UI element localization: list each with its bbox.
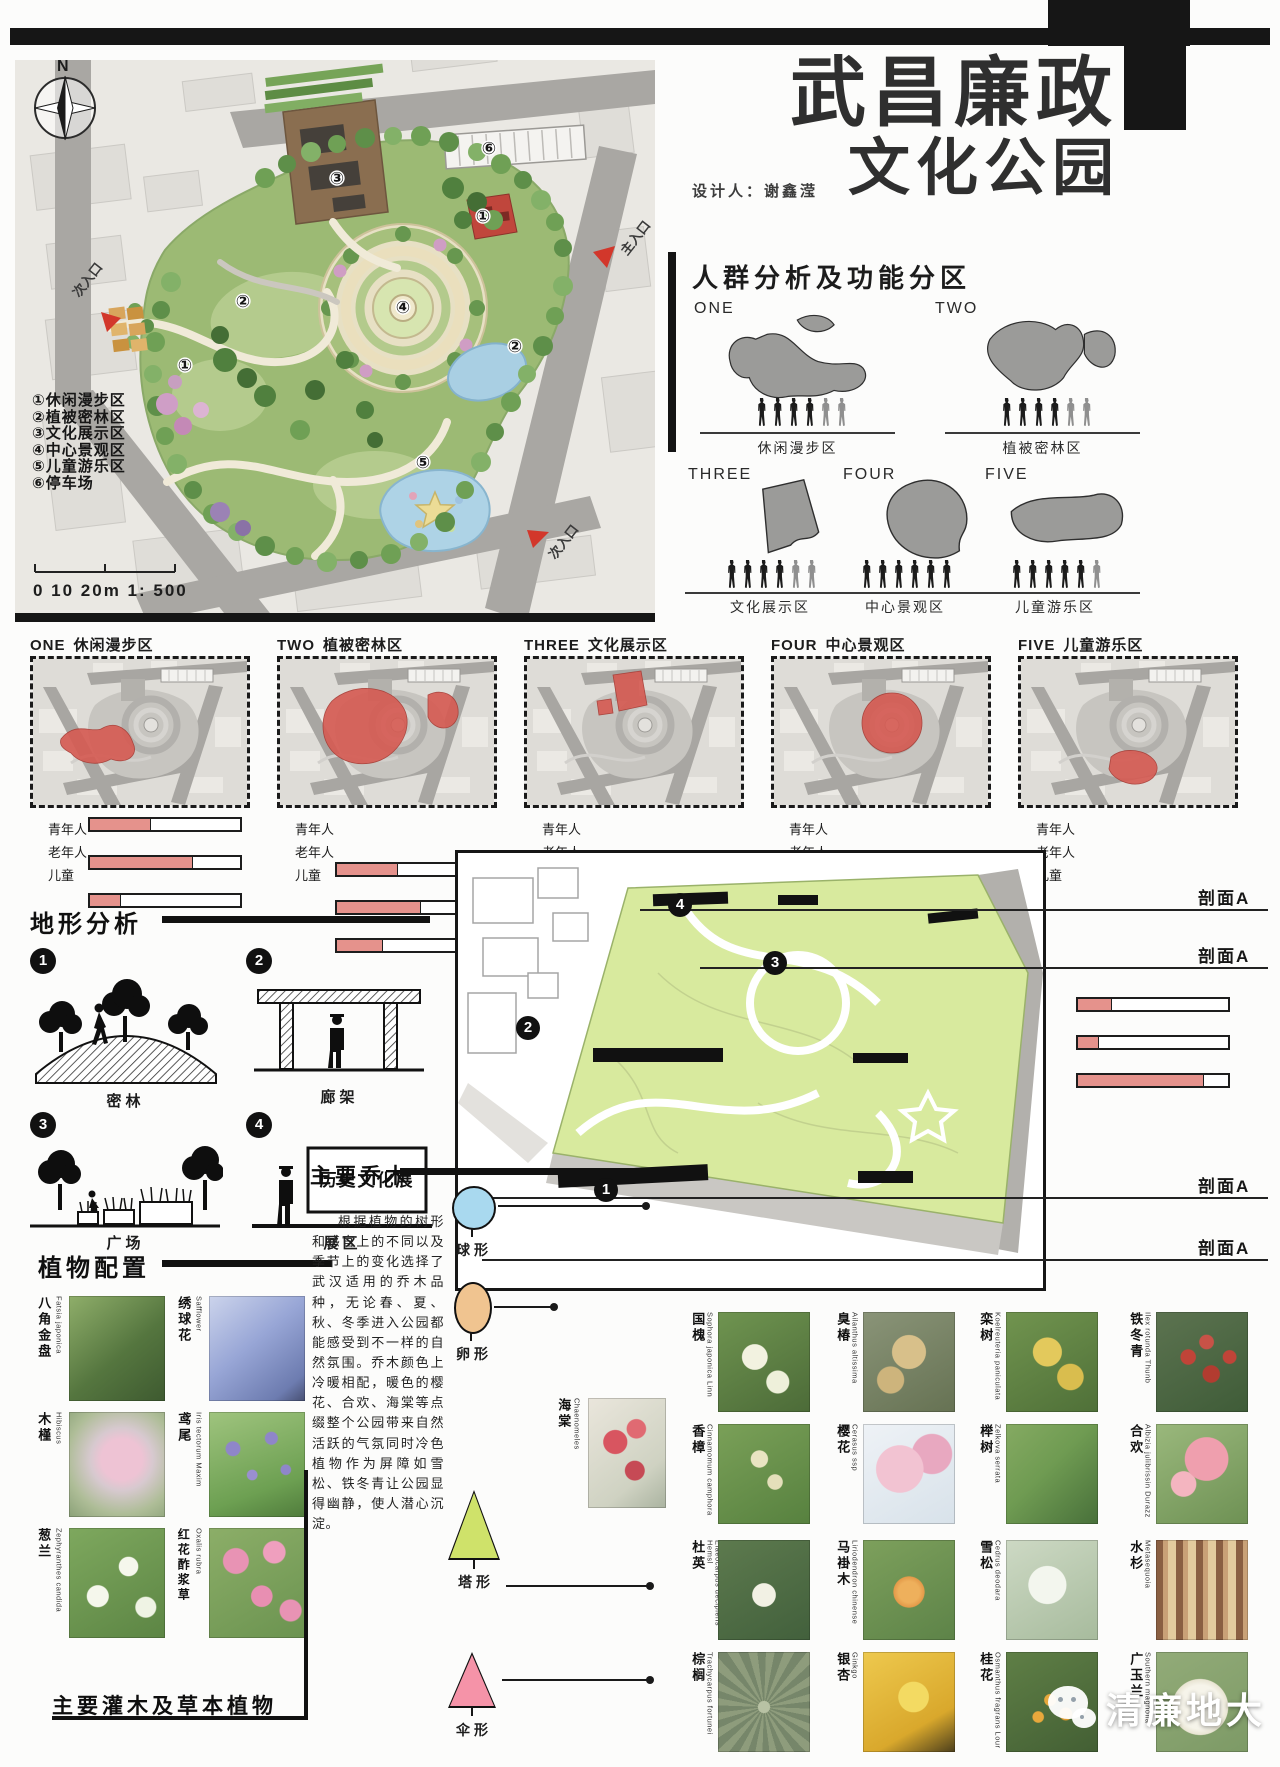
terrain-section-title: 地形分析 [30,904,142,939]
north-label: N [57,58,69,76]
person-icon [787,398,800,426]
terrain-illustration-pergola [252,964,427,1082]
plant-photo [863,1540,955,1640]
plant-photo [1006,1312,1098,1412]
legend-item: ③文化展示区 [32,426,126,443]
plant-latin: Cedrus deodara [993,1540,1001,1640]
section-line [640,909,1268,911]
plant-latin: Ailanthus altissima [850,1312,858,1412]
zone-shape-two [955,312,1145,400]
plant-photo [863,1652,955,1752]
divider [52,1716,308,1720]
minimap-title: TWO植被密林区 [277,634,403,655]
plant-name: 马褂木 [835,1540,849,1640]
plant-name: 八角金盘 [36,1296,50,1401]
plant-name: 国槐 [690,1312,704,1412]
bar-fill [1078,999,1112,1010]
watermark-text: 清廉地大 [1106,1682,1266,1734]
person-icon [1058,560,1071,588]
zone-shape-one [700,312,905,400]
person-icon [771,398,784,426]
person-icon [908,560,921,588]
plant-name: 海棠 [556,1398,570,1508]
plant-latin: Safflower [194,1296,202,1401]
crowd-section-title: 人群分析及功能分区 [692,258,971,295]
person-icon [725,560,738,588]
plant-latin: Albizia julibrissin Durazz [1143,1424,1151,1524]
title-corner-block [1048,0,1190,46]
connector-dot [646,1582,654,1590]
plant-photo [1006,1540,1098,1640]
zone-shape-five [1000,486,1140,552]
plant-photo [1006,1424,1098,1524]
icon-stem [471,1708,473,1716]
person-icon [860,560,873,588]
tree-shape-label: 塔形 [458,1572,494,1592]
terrain-illustration-forest [28,964,223,1089]
main-trees-title: 主要乔木 [310,1160,410,1190]
bar-fill [90,857,193,868]
culture-plaza [283,100,388,224]
plant-photo [209,1412,305,1517]
person-icon [876,560,889,588]
tree-shape-round-icon [452,1186,496,1230]
bar-label: 儿童 [48,865,92,884]
tree-shape-pyramid-icon [448,1490,500,1560]
wechat-icon [1048,1686,1098,1730]
divider [162,916,430,923]
zone-group-name-five: 儿童游乐区 [970,597,1140,617]
connector-line [494,1306,554,1308]
icon-stem [473,1560,475,1569]
plant-photo [718,1652,810,1752]
svg-text:②: ② [508,337,522,356]
axon-marker: 1 [594,1178,618,1202]
person-icon [1064,398,1077,426]
person-icon [773,560,786,588]
minimap-title: THREE文化展示区 [524,634,668,655]
plant-latin: Trachycarpus fortunei [705,1652,713,1752]
bar-fill [337,940,383,951]
plant-photo [1156,1424,1248,1524]
people-icons [1000,398,1093,426]
plant-name: 绣球花 [176,1296,190,1401]
people-icons [725,560,818,588]
crowd-section-border [668,252,676,452]
bar-fill [90,819,151,830]
person-icon [1032,398,1045,426]
plant-latin: Cinnamomum camphora [705,1424,713,1524]
tree-shape-label: 卵形 [456,1344,492,1364]
icon-stem [471,1228,473,1237]
axon-plan-panel [455,850,1046,1291]
plant-name: 鸢尾 [176,1412,190,1517]
person-icon [755,398,768,426]
plant-latin: Fatsia japonica [54,1296,62,1401]
title-corner-stem [1124,46,1186,130]
terrain-illustration-plaza [28,1128,223,1232]
connector-dot [646,1676,654,1684]
tree-shape-label: 伞形 [456,1720,492,1740]
minimap-three [524,656,744,808]
tree-shape-umbrella-icon [448,1652,496,1708]
bar-label: 儿童 [295,865,339,884]
connector-dot [550,1303,558,1311]
person-icon [741,560,754,588]
svg-text:④: ④ [396,298,410,317]
main-trees-description: 根据植物的树形和感官上的不同以及季节上的变化选择了武汉适用的乔木品种，无论春、夏… [312,1212,444,1534]
master-plan-illustration: 次入口 主入口 次入口 ③ ⑥ ① ④ ② ② ① ⑤ 0 10 20m 1: … [15,60,655,622]
person-icon [1074,560,1087,588]
axon-marker: 3 [763,951,787,975]
svg-text:①: ① [178,356,192,375]
person-icon [819,398,832,426]
person-icon [940,560,953,588]
plant-latin: Osmanthus fragrans Lour [993,1652,1001,1752]
person-icon [1016,398,1029,426]
divider [162,1260,332,1267]
bar-track [88,817,242,832]
bar-label: 老年人 [48,842,92,861]
plant-name: 樱花 [835,1424,849,1524]
axon-marker: 4 [668,893,692,917]
legend-item: ⑤儿童游乐区 [32,459,126,476]
legend-item: ④中心景观区 [32,443,126,460]
poster-page: 武昌廉政 文化公园 设计人：谢鑫滢 [0,0,1280,1767]
person-icon [803,398,816,426]
plant-photo [69,1412,165,1517]
plant-name: 合欢 [1128,1424,1142,1524]
plant-name: 水杉 [1128,1540,1142,1640]
person-icon [805,560,818,588]
plan-legend: ①休闲漫步区 ②植被密林区 ③文化展示区 ④中心景观区 ⑤儿童游乐区 ⑥停车场 [32,393,126,492]
terrain-item-label: 密林 [28,1090,223,1111]
plant-latin: Zelkova serrata [993,1424,1001,1524]
plant-photo [209,1296,305,1401]
plant-name: 栾树 [978,1312,992,1412]
bar-label: 青年人 [542,819,586,838]
minimap-title: ONE休闲漫步区 [30,634,154,655]
bar-label: 青年人 [789,819,833,838]
divider [700,432,895,434]
zone-group-name-four: 中心景观区 [820,597,990,617]
bar-label: 青年人 [48,819,92,838]
bar-fill [337,864,398,875]
plant-photo [718,1312,810,1412]
plant-latin: Zephyranthes candida [54,1528,62,1638]
connector-line [498,1205,644,1207]
plant-latin: Iris tectorum Maxim [194,1412,202,1517]
connector-line [502,1679,648,1681]
plant-photo [69,1296,165,1401]
person-icon [892,560,905,588]
watermark: 清廉地大 [1048,1682,1266,1734]
bar-fill [1078,1037,1099,1048]
svg-text:⑥: ⑥ [482,139,496,158]
planting-section-title: 植物配置 [38,1248,150,1283]
terrain-item-label: 廊架 [252,1086,427,1107]
divider [945,432,1140,434]
plant-latin: Chaenomeles [572,1398,580,1508]
svg-text:①: ① [476,207,490,226]
plant-name: 木槿 [36,1412,50,1517]
person-icon [924,560,937,588]
minimap-five [1018,656,1238,808]
plant-latin: Oxalis rubra [194,1528,202,1638]
plant-name: 桂花 [978,1652,992,1752]
zone-group-name-two: 植被密林区 [945,438,1140,458]
bar-label: 老年人 [295,842,339,861]
plant-name: 铁冬青 [1128,1312,1142,1412]
plant-name: 红花酢浆草 [176,1528,189,1638]
person-icon [1026,560,1039,588]
person-icon [1080,398,1093,426]
svg-text:⑤: ⑤ [416,453,430,472]
poster-title-line1: 武昌廉政 [688,56,1118,132]
axon-marker: 2 [516,1016,540,1040]
plant-latin: Liriodendron chinense [850,1540,858,1640]
person-icon [1000,398,1013,426]
plant-latin: Ginkgo [850,1652,858,1752]
plant-photo [69,1528,165,1638]
icon-stem [470,1332,472,1341]
divider [304,1470,308,1720]
bar-label: 青年人 [295,819,339,838]
plant-latin: Cerasus ssp [850,1424,858,1524]
section-line [482,1259,1268,1261]
plant-name: 榉树 [978,1424,992,1524]
bar-track [1076,1035,1230,1050]
plant-photo [863,1312,955,1412]
plant-name: 葱兰 [36,1528,50,1638]
compass-icon [35,76,95,140]
designer-name: 设计人：谢鑫滢 [692,180,818,201]
plant-photo [1156,1540,1248,1640]
minimap-title: FOUR中心景观区 [771,634,906,655]
people-icons [755,398,848,426]
zone-group-name-one: 休闲漫步区 [700,438,895,458]
plant-name: 臭椿 [835,1312,849,1412]
connector-dot [642,1202,650,1210]
section-line [470,1197,1268,1199]
plant-photo [718,1540,810,1640]
plant-name: 杜英 [690,1540,704,1640]
divider [400,1168,640,1175]
bar-fill [337,902,421,913]
minimap-four [771,656,991,808]
plant-latin: Ilex rotunda Thunb [1143,1312,1151,1412]
plant-latin: Hibiscus [54,1412,62,1517]
plant-photo [588,1398,666,1508]
section-label: 剖面A [1198,884,1250,909]
plant-name: 银杏 [835,1652,849,1752]
section-label: 剖面A [1198,1172,1250,1197]
bar-label: 青年人 [1036,819,1080,838]
plant-latin: Sophora japonica Linn [705,1312,713,1412]
tree-shape-oval-icon [454,1282,492,1334]
person-icon [789,560,802,588]
plant-name: 棕榈 [690,1652,704,1752]
person-icon [1042,560,1055,588]
minimap-one [30,656,250,808]
divider [820,592,990,594]
person-icon [1010,560,1023,588]
svg-text:③: ③ [330,169,344,188]
minimap-two [277,656,497,808]
axon-plan-illustration [458,853,1043,1288]
plant-name: 香樟 [690,1424,704,1524]
minimap-title: FIVE儿童游乐区 [1018,634,1143,655]
plant-photo [1156,1312,1248,1412]
legend-item: ①休闲漫步区 [32,393,126,410]
plant-photo [718,1424,810,1524]
plant-latin: Metasequoia [1143,1540,1151,1640]
plant-photo [863,1424,955,1524]
zone-shape-three [737,478,837,560]
svg-text:0 10 20m 1: 500: 0 10 20m 1: 500 [33,581,188,600]
bar-track [1076,997,1230,1012]
divider [970,592,1140,594]
legend-item: ⑥停车场 [32,476,126,493]
person-icon [835,398,848,426]
person-icon [757,560,770,588]
people-icons [1010,560,1103,588]
person-icon [1090,560,1103,588]
legend-item: ②植被密林区 [32,410,126,427]
bar-track [88,855,242,870]
tree-shape-label: 球形 [456,1240,492,1260]
svg-text:②: ② [236,292,250,311]
connector-line [506,1585,648,1587]
plant-latin: Koelreuteria paniculata [993,1312,1001,1412]
plant-photo [209,1528,305,1638]
people-icons [860,560,953,588]
section-label: 剖面A [1198,1234,1250,1259]
zone-group-id-five: FIVE [985,466,1029,484]
master-plan: 次入口 主入口 次入口 ③ ⑥ ① ④ ② ② ① ⑤ 0 10 20m 1: … [15,60,655,622]
bar-track [1076,1073,1230,1088]
section-label: 剖面A [1198,942,1250,967]
plant-name: 雪松 [978,1540,992,1640]
bar-fill [1078,1075,1204,1086]
zone-shape-four [868,476,976,562]
person-icon [1048,398,1061,426]
